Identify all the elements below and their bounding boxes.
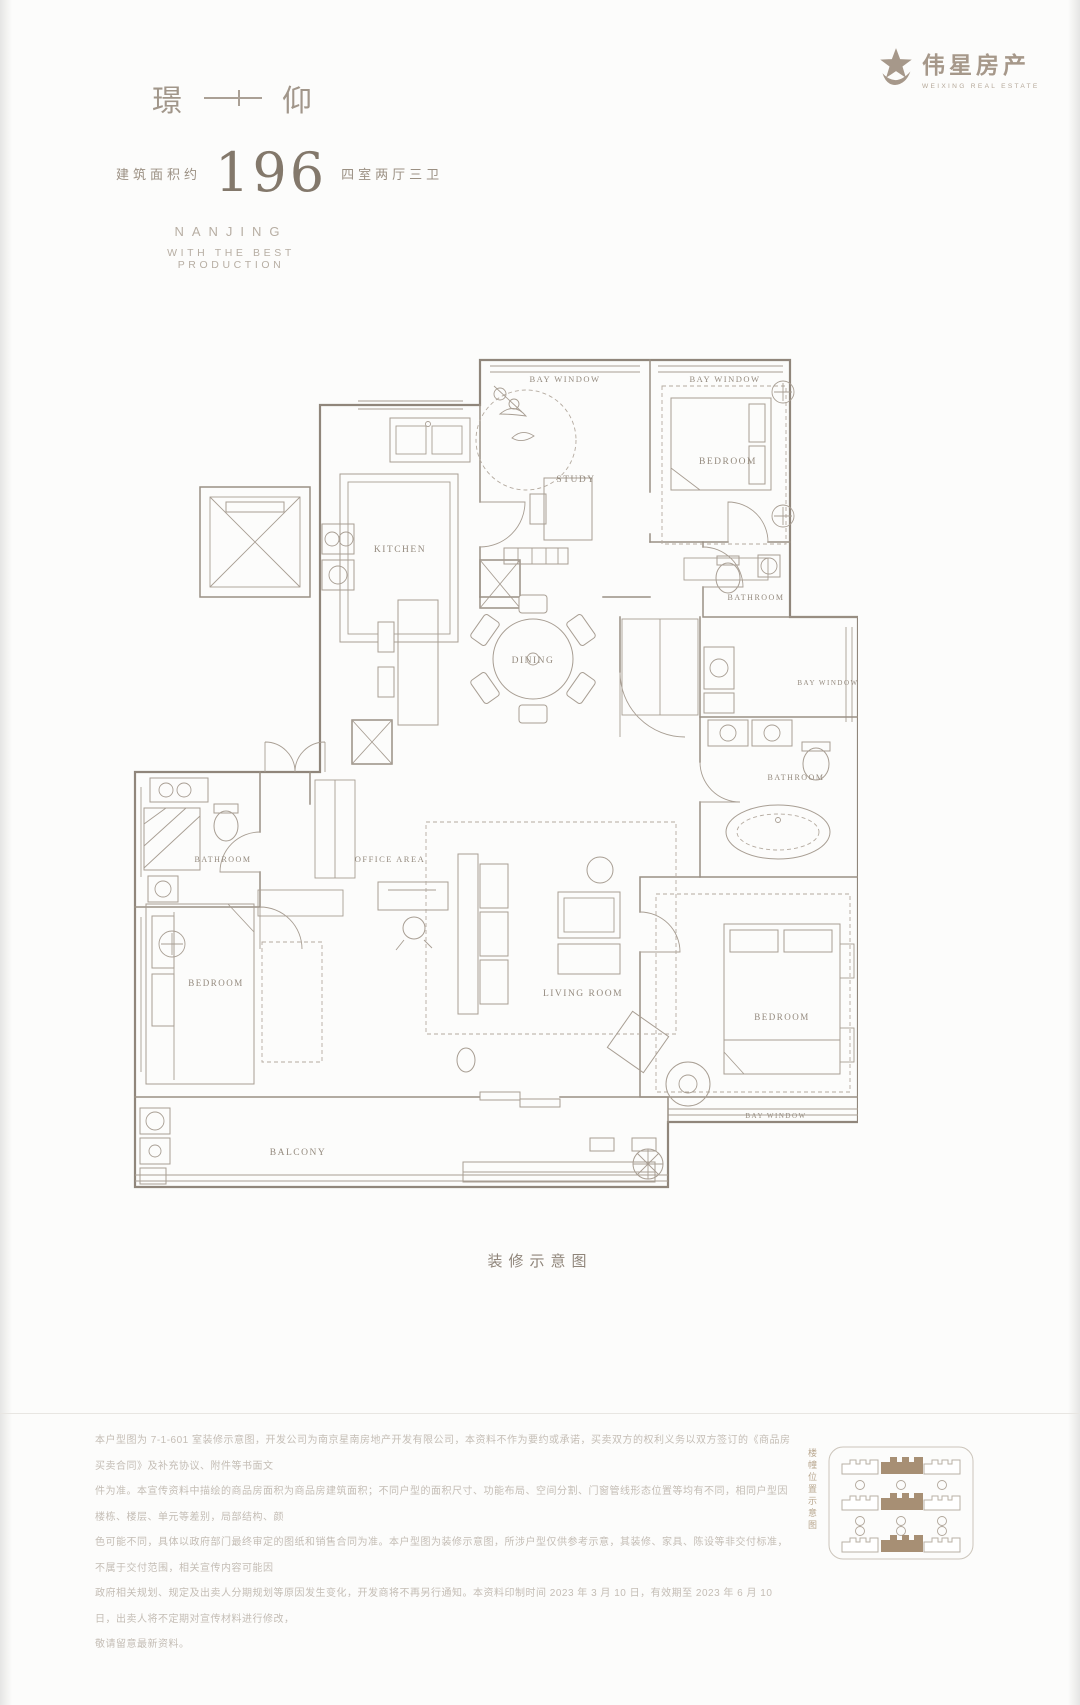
page: 璟 仰 建筑面积约 196 四室两厅三卫 NANJING WITH THE BE… (0, 0, 1080, 1705)
living-room-furniture (426, 822, 676, 1073)
room-label: BAY WINDOW (797, 679, 858, 687)
disclaimer-line: 件为准。本宣传资料中描绘的商品房面积为商品房建筑面积；不同户型的面积尺寸、功能布… (95, 1479, 795, 1530)
title-char-right: 仰 (282, 76, 314, 120)
balcony-furniture (140, 1108, 663, 1184)
keyplan-buildings (842, 1457, 960, 1552)
brand-name-cn: 伟星房产 (922, 46, 1040, 80)
bathroom-lr-fixtures (708, 720, 830, 859)
elevator-shaft (200, 487, 520, 764)
keyplan-caption: 楼幢位置示意图 (806, 1448, 819, 1532)
page-title: 璟 仰 (152, 76, 314, 120)
room-label: BEDROOM (699, 457, 757, 467)
plus-line-icon (204, 97, 262, 99)
room-label: BALCONY (270, 1148, 326, 1158)
interior-walls (135, 360, 858, 1122)
room-label: BATHROOM (768, 773, 825, 782)
subtitle-line2: WITH THE BEST PRODUCTION (112, 247, 350, 271)
layout-label: 四室两厅三卫 (341, 164, 443, 183)
room-label: BEDROOM (754, 1012, 810, 1022)
area-value: 196 (215, 146, 327, 200)
disclaimer-line: 色可能不同，具体以政府部门最终审定的图纸和销售合同为准。本户型图为装修示意图，所… (95, 1530, 795, 1581)
room-label: DINING (512, 656, 555, 666)
page-edge-left (0, 0, 12, 1705)
room-label: BAY WINDOW (745, 1112, 806, 1120)
brand-name-en: WEIXING REAL ESTATE (922, 83, 1040, 90)
brand-logo: 伟星房产 WEIXING REAL ESTATE (878, 46, 1040, 93)
title-char-left: 璟 (152, 76, 184, 120)
closet-hatch (622, 619, 734, 715)
page-edge-right (1068, 0, 1080, 1705)
area-label: 建筑面积约 (116, 164, 201, 183)
bedroom-tr-furniture (662, 381, 794, 580)
door-arcs (220, 502, 768, 1107)
office-area-furniture (258, 780, 448, 950)
brand-logo-text: 伟星房产 WEIXING REAL ESTATE (922, 46, 1040, 90)
subtitle-block: NANJING WITH THE BEST PRODUCTION (112, 224, 350, 271)
floorplan-svg: BAY WINDOWBAY WINDOWKITCHENSTUDYBEDROOMB… (128, 352, 858, 1200)
subtitle-line1: NANJING (112, 224, 350, 239)
room-label: BAY WINDOW (529, 374, 600, 384)
room-label: BATHROOM (728, 593, 785, 602)
disclaimer-line: 政府相关规划、规定及出卖人分期规划等原因发生变化，开发商将不再另行通知。本资料印… (95, 1581, 795, 1632)
disclaimer-line: 敬请留意最新资料。 (95, 1632, 795, 1658)
room-label: STUDY (556, 475, 595, 485)
keyplan: 楼幢位置示意图 (806, 1444, 976, 1562)
room-label: LIVING ROOM (543, 989, 623, 999)
room-label: KITCHEN (374, 545, 426, 555)
room-label: BAY WINDOW (689, 374, 760, 384)
room-label: OFFICE AREA (355, 854, 426, 864)
disclaimer-line: 本户型图为 7-1-601 室装修示意图，开发公司为南京星南房地产开发有限公司，… (95, 1428, 795, 1479)
bathroom-l-fixtures (144, 778, 238, 957)
disclaimer-text: 本户型图为 7-1-601 室装修示意图，开发公司为南京星南房地产开发有限公司，… (95, 1428, 795, 1658)
area-row: 建筑面积约 196 四室两厅三卫 (116, 146, 443, 200)
bedroom-br-furniture (656, 894, 854, 1106)
floorplan: BAY WINDOWBAY WINDOWKITCHENSTUDYBEDROOMB… (128, 352, 858, 1200)
room-label: BATHROOM (195, 855, 252, 864)
room-label: BEDROOM (188, 978, 244, 988)
footer-divider (0, 1413, 1080, 1414)
keyplan-svg (826, 1444, 976, 1562)
windows (135, 366, 858, 1181)
dining-set (378, 595, 596, 725)
star-icon (878, 46, 914, 93)
plan-caption: 装修示意图 (0, 1250, 1080, 1271)
kitchen-furniture (322, 418, 470, 642)
